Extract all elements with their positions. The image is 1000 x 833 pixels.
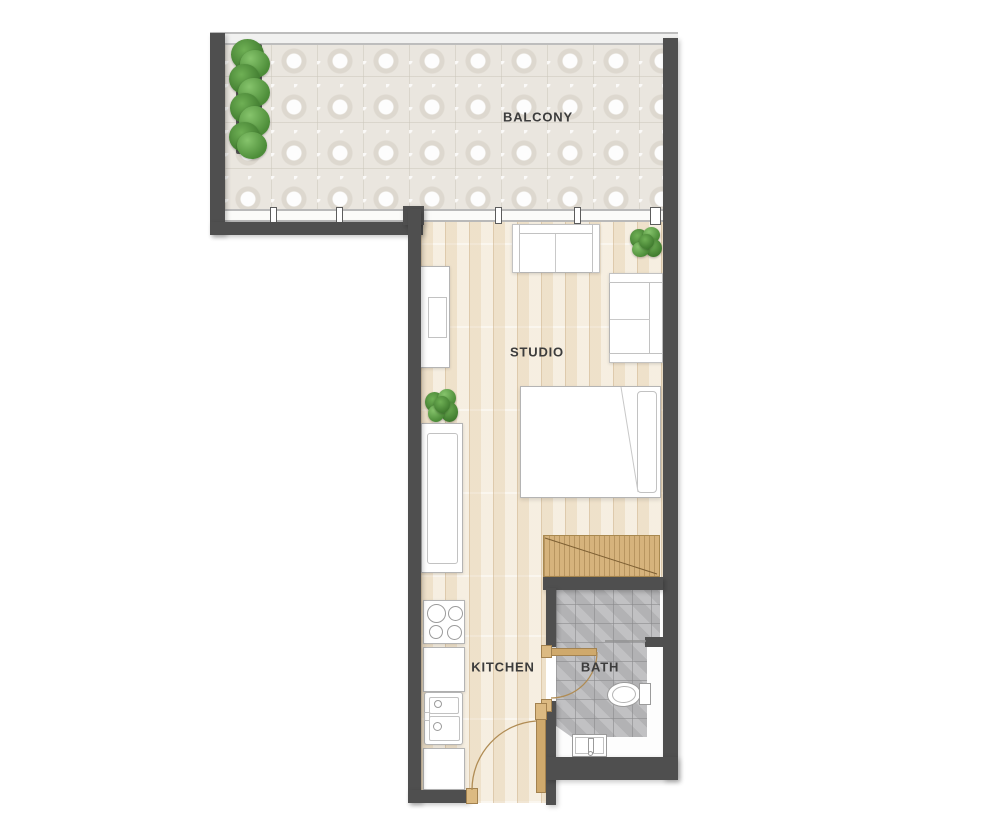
bath-left-wall-upper bbox=[546, 588, 556, 647]
balcony-window-band bbox=[213, 209, 663, 222]
kitchen-counter-mid bbox=[423, 647, 465, 692]
balcony-left-wall bbox=[210, 33, 225, 235]
sink-faucet bbox=[424, 712, 430, 721]
stove bbox=[423, 600, 465, 644]
balcony-label: BALCONY bbox=[503, 110, 573, 125]
bath-sink-drain bbox=[588, 751, 593, 756]
studio-plant-mid bbox=[424, 389, 459, 423]
floor-plan: BALCONY STUDIO KITCHEN BATH bbox=[0, 0, 1000, 833]
balcony-floor bbox=[225, 38, 663, 215]
sofa-armrest-right bbox=[592, 224, 600, 273]
balcony-bottom-wall bbox=[210, 222, 423, 235]
studio-left-wall bbox=[408, 209, 421, 803]
bath-bottom-wall bbox=[546, 757, 678, 780]
bath-label: BATH bbox=[581, 660, 619, 675]
sofa bbox=[512, 224, 600, 273]
right-wall bbox=[663, 38, 678, 780]
entry-door-hinge-block bbox=[535, 703, 547, 720]
balcony-glass-railing bbox=[210, 32, 678, 45]
bath-left-wall-lower bbox=[546, 701, 556, 805]
entry-door-jamb-left bbox=[466, 788, 478, 804]
stove-burner bbox=[427, 604, 446, 623]
sink-drain bbox=[434, 700, 442, 708]
toilet-tank bbox=[639, 683, 651, 705]
bed-pillow bbox=[637, 391, 657, 493]
wardrobe bbox=[543, 535, 660, 577]
window-end-post bbox=[650, 207, 661, 225]
stove-burner bbox=[429, 625, 443, 639]
stove-burner bbox=[448, 606, 463, 621]
window-mullion bbox=[495, 207, 502, 224]
bed bbox=[520, 386, 661, 498]
bath-door-leaf bbox=[551, 648, 597, 656]
entry-bottom-wall bbox=[408, 790, 468, 803]
kitchen-counter-top bbox=[427, 433, 458, 564]
armchair-backrest bbox=[649, 282, 663, 354]
bath-top-wall bbox=[543, 577, 663, 590]
shower-wall-stub bbox=[645, 637, 663, 647]
sofa-cushion-divider bbox=[555, 234, 556, 272]
bath-sink bbox=[572, 734, 607, 757]
kitchen-sink bbox=[424, 692, 463, 745]
balcony-plant bbox=[229, 39, 269, 157]
studio-plant-top bbox=[629, 227, 663, 258]
stove-burner bbox=[447, 625, 462, 640]
studio-label: STUDIO bbox=[510, 345, 564, 360]
window-mullion bbox=[574, 207, 581, 224]
tv bbox=[428, 297, 447, 338]
armchair bbox=[609, 273, 663, 363]
sofa-backrest bbox=[519, 224, 593, 234]
sink-drain bbox=[433, 722, 442, 731]
kitchen-label: KITCHEN bbox=[471, 660, 534, 675]
kitchen-counter-low bbox=[423, 748, 465, 790]
kitchen-counter-long bbox=[421, 423, 463, 573]
tv-unit bbox=[418, 266, 450, 368]
armchair-armrest-bottom bbox=[609, 353, 663, 363]
armchair-cushion-divider bbox=[610, 319, 650, 320]
